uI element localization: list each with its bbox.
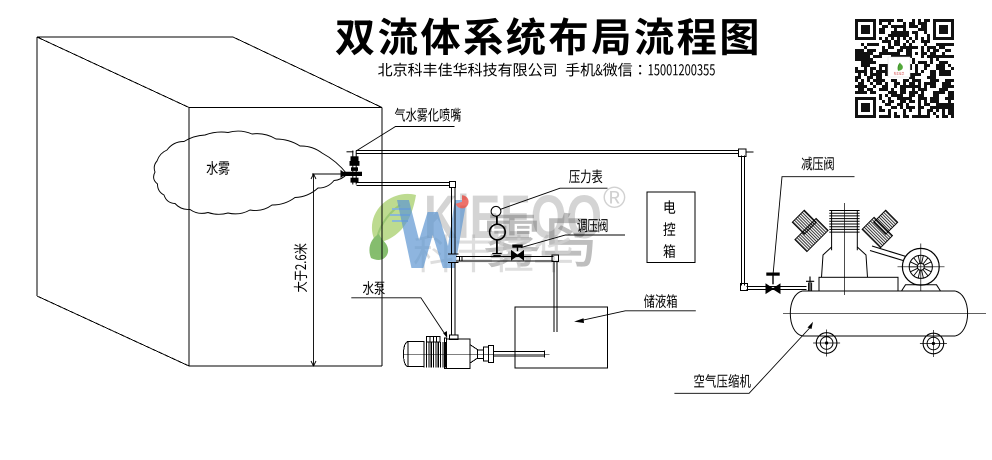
svg-text:®: ® (603, 180, 626, 215)
svg-text:科丰佳华: 科丰佳华 (894, 71, 905, 75)
